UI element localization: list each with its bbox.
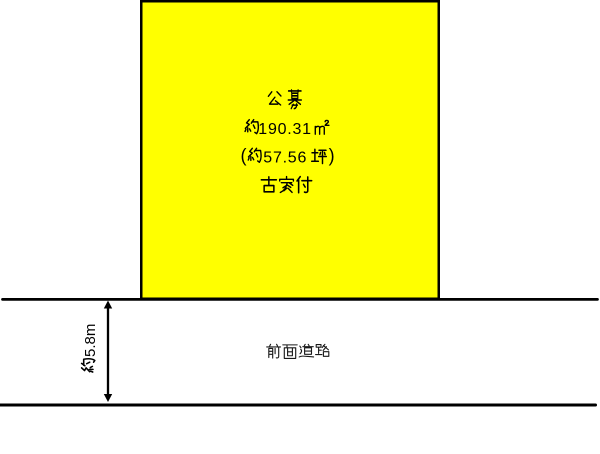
svg-text:57.56: 57.56 <box>263 150 307 167</box>
svg-text:): ) <box>329 145 335 165</box>
svg-text:(: ( <box>241 145 247 165</box>
svg-text:5.8m: 5.8m <box>82 324 99 357</box>
svg-text:190.31: 190.31 <box>258 121 311 138</box>
